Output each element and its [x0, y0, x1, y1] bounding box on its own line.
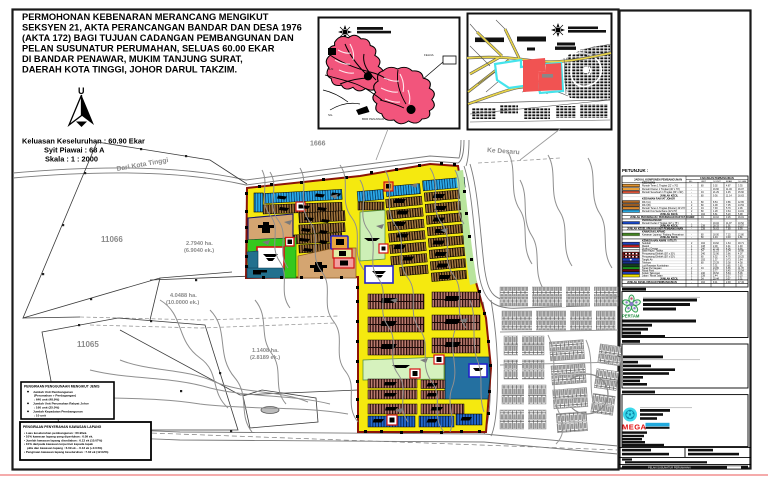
svg-text:5.04: 5.04 [726, 251, 731, 253]
svg-text:3.64: 3.64 [726, 211, 731, 213]
svg-text:PERMOHONAN KEBENARAN MERANCANG: PERMOHONAN KEBENARAN MERANCANG MENGIKUT [22, 12, 269, 22]
svg-text:11.03: 11.03 [726, 189, 732, 191]
svg-text:18.88: 18.88 [738, 251, 745, 253]
svg-text:7.35: 7.35 [726, 205, 731, 207]
svg-text:14.19: 14.19 [738, 211, 745, 213]
svg-text:5.98: 5.98 [738, 214, 743, 216]
svg-text:4.38: 4.38 [738, 263, 743, 265]
svg-text:15.66: 15.66 [738, 192, 745, 194]
svg-text:0.57: 0.57 [726, 278, 731, 280]
svg-text:21.29: 21.29 [713, 192, 720, 194]
svg-text:28.33: 28.33 [713, 226, 720, 228]
svg-text:16.66: 16.66 [713, 189, 720, 191]
svg-text:2.44: 2.44 [713, 276, 718, 278]
svg-text:1.37: 1.37 [713, 260, 718, 262]
svg-text:18.00: 18.00 [713, 234, 720, 236]
svg-text:17.43: 17.43 [738, 282, 745, 284]
svg-text:32.90: 32.90 [713, 254, 720, 256]
svg-text:4.94: 4.94 [713, 237, 718, 239]
svg-text:JLN: JLN [328, 67, 333, 71]
svg-text:2.7940 ha.: 2.7940 ha. [186, 241, 213, 247]
svg-text:7.15: 7.15 [726, 234, 731, 236]
svg-text:8.54: 8.54 [713, 202, 718, 204]
svg-text:39.52: 39.52 [713, 273, 720, 275]
svg-text:SG.: SG. [328, 113, 333, 117]
svg-text:Syit Piawai : 68 A: Syit Piawai : 68 A [44, 146, 105, 155]
svg-text:11066: 11066 [101, 235, 123, 244]
svg-text:13.53: 13.53 [738, 205, 745, 207]
svg-text:: 10 unit: : 10 unit [34, 413, 46, 417]
svg-text:2.93: 2.93 [726, 282, 731, 284]
svg-text:1.64: 1.64 [726, 243, 731, 245]
svg-text:5.79: 5.79 [726, 208, 731, 210]
svg-text:19.25: 19.25 [738, 257, 745, 259]
svg-text:5.17: 5.17 [726, 276, 731, 278]
svg-text:BIL.: BIL. [689, 181, 693, 183]
svg-text:(10.0000 ek.): (10.0000 ek.) [166, 300, 199, 306]
svg-text:1.28: 1.28 [713, 211, 718, 213]
svg-text:5.02: 5.02 [713, 186, 718, 188]
svg-text:12.80: 12.80 [738, 234, 745, 236]
svg-text:4.87: 4.87 [726, 186, 731, 188]
svg-text:DAERAH KOTA TINGGI, JOHOR DARU: DAERAH KOTA TINGGI, JOHOR DARUL TAKZIM. [22, 65, 237, 75]
svg-text:4.81: 4.81 [738, 237, 743, 239]
svg-text:12.65: 12.65 [738, 202, 745, 204]
svg-text:4.07: 4.07 [738, 254, 743, 256]
svg-text:% UNIT: % UNIT [713, 181, 721, 183]
svg-text:(AKTA 172) BAGI TUJUAN CADANGA: (AKTA 172) BAGI TUJUAN CADANGAN PEMBANGU… [22, 33, 294, 43]
svg-text:16.07: 16.07 [738, 189, 745, 191]
svg-text:4.70: 4.70 [726, 257, 731, 259]
svg-text:3.64: 3.64 [738, 260, 743, 262]
svg-text:(6.9040 ek.): (6.9040 ek.) [184, 248, 214, 254]
svg-text:5.20: 5.20 [726, 214, 731, 216]
svg-text:6.32: 6.32 [713, 257, 718, 259]
svg-text:DI BANDAR PENAWAR, MUKIM TANJU: DI BANDAR PENAWAR, MUKIM TANJUNG SURAT, [22, 54, 243, 64]
svg-text:4.45: 4.45 [726, 192, 731, 194]
svg-text:• Pengiraan kawasan lapang kes: • Pengiraan kawasan lapang keseluruhan :… [24, 450, 108, 454]
svg-text:3.35: 3.35 [738, 186, 743, 188]
svg-text:JUMLAH KESELURUHAN PEMBANGUNAN: JUMLAH KESELURUHAN PEMBANGUNAN [627, 281, 677, 284]
svg-text:11.97: 11.97 [726, 223, 732, 225]
svg-text:CADANGAN PEMBANGUNAN: CADANGAN PEMBANGUNAN [700, 177, 734, 180]
svg-text:UNIT: UNIT [701, 181, 707, 183]
svg-text:31.23: 31.23 [713, 251, 720, 253]
svg-text:U: U [78, 86, 85, 96]
svg-text:18.71: 18.71 [738, 243, 745, 245]
svg-text:BDR PENAWAR: BDR PENAWAR [362, 117, 385, 121]
svg-text:3.26: 3.26 [726, 217, 731, 219]
svg-text:FELDA: FELDA [424, 53, 434, 57]
svg-text:23.29: 23.29 [713, 263, 720, 265]
svg-text:5.20: 5.20 [738, 276, 743, 278]
svg-text:4.0488 ha.: 4.0488 ha. [170, 293, 197, 299]
svg-text:36.63: 36.63 [713, 228, 720, 230]
svg-text:0.73: 0.73 [726, 260, 731, 262]
svg-text:1.1408 ha.: 1.1408 ha. [252, 348, 279, 354]
svg-text:0.93: 0.93 [726, 237, 731, 239]
svg-text:SEKSYEN 21, AKTA PERANCANGAN: SEKSYEN 21, AKTA PERANCANGAN BANDAR DAN … [22, 23, 302, 33]
svg-text:7.69: 7.69 [726, 228, 731, 230]
svg-text:7.93: 7.93 [713, 208, 718, 210]
svg-text:JUMLAH PERUMAHAN / PERUMAHAN R: JUMLAH PERUMAHAN / PERUMAHAN RAKYAT JOHO… [630, 216, 695, 219]
svg-text:34.62: 34.62 [713, 243, 720, 245]
svg-text:16.63: 16.63 [738, 195, 745, 197]
svg-text:1.91: 1.91 [726, 226, 731, 228]
svg-text:5.84: 5.84 [726, 273, 731, 275]
svg-text:8.61: 8.61 [713, 214, 718, 216]
svg-text:MEGA: MEGA [622, 423, 646, 432]
svg-text:PERTAM: PERTAM [622, 314, 640, 319]
svg-text:19.04: 19.04 [713, 223, 720, 225]
svg-text:3.86: 3.86 [726, 202, 731, 204]
svg-text:10.52: 10.52 [738, 223, 745, 225]
svg-text:10.10: 10.10 [713, 217, 720, 219]
svg-text:PELAN SUSUNATUR PERUMAHAN, SEL: PELAN SUSUNATUR PERUMAHAN, SELUAS 60.00 … [22, 44, 275, 54]
svg-text:PENGIRAAN PENGGUNAAN MENGIKUT: PENGIRAAN PENGGUNAAN MENGIKUT JENIS [24, 385, 100, 389]
svg-text:16.01: 16.01 [738, 217, 745, 219]
svg-text:PETUNJUK :: PETUNJUK : [622, 168, 649, 173]
svg-text:5.38: 5.38 [726, 263, 731, 265]
svg-text:Keluasan Keseluruhan : 60.90 E: Keluasan Keseluruhan : 60.90 Ekar [22, 137, 145, 146]
svg-text:5.06: 5.06 [738, 273, 743, 275]
svg-text:11065: 11065 [77, 340, 99, 349]
svg-text:13.57: 13.57 [738, 226, 745, 228]
svg-text:PELAN SUSUNATUR PERUMAHAN: PELAN SUSUNATUR PERUMAHAN [648, 466, 691, 470]
svg-text:11.14: 11.14 [726, 195, 732, 197]
svg-text:2.06: 2.06 [738, 208, 743, 210]
svg-text:% LUAS: % LUAS [738, 180, 747, 183]
svg-text:4.38: 4.38 [713, 205, 718, 207]
svg-text:8.99: 8.99 [738, 228, 743, 230]
svg-text:9.36: 9.36 [713, 195, 718, 197]
svg-text:EKAR: EKAR [726, 180, 732, 183]
svg-text:1666: 1666 [310, 141, 326, 148]
svg-text:PENGIRAAN PENYERAHAN KAWASAN L: PENGIRAAN PENYERAHAN KAWASAN LAPANG [23, 425, 102, 429]
svg-text:3.66: 3.66 [726, 254, 731, 256]
svg-text:9.11: 9.11 [713, 282, 718, 284]
svg-text:20.44: 20.44 [713, 278, 720, 280]
svg-text:5.31: 5.31 [738, 278, 743, 280]
